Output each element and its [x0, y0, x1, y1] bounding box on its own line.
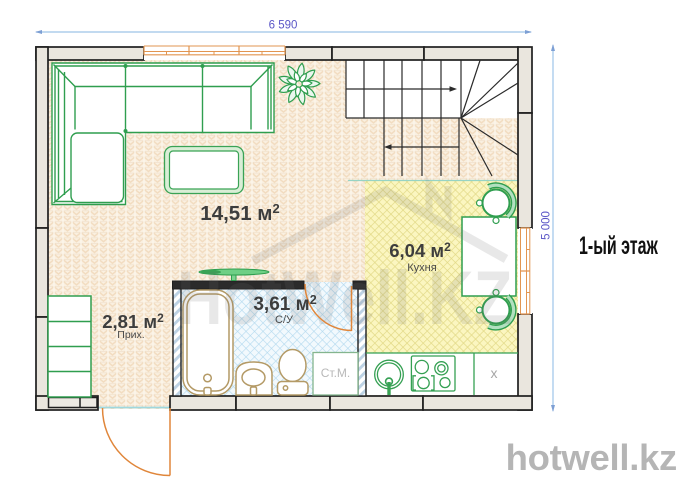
svg-text:1-ый этаж: 1-ый этаж	[579, 233, 659, 260]
svg-text:14,51 м2: 14,51 м2	[200, 201, 279, 225]
svg-text:x: x	[491, 365, 498, 381]
svg-text:6 590: 6 590	[269, 20, 298, 32]
svg-text:5 000: 5 000	[541, 211, 553, 240]
svg-text:HotWell.KZ: HotWell.KZ	[177, 255, 512, 340]
svg-text:Ст.М.: Ст.М.	[321, 366, 351, 380]
svg-text:С/У: С/У	[275, 314, 294, 326]
svg-text:Прих.: Прих.	[117, 329, 144, 341]
svg-text:3,61 м2: 3,61 м2	[253, 293, 316, 315]
svg-text:6,04 м2: 6,04 м2	[389, 240, 451, 261]
svg-text:hotwell.kz: hotwell.kz	[506, 437, 677, 478]
svg-text:Кухня: Кухня	[407, 262, 436, 274]
